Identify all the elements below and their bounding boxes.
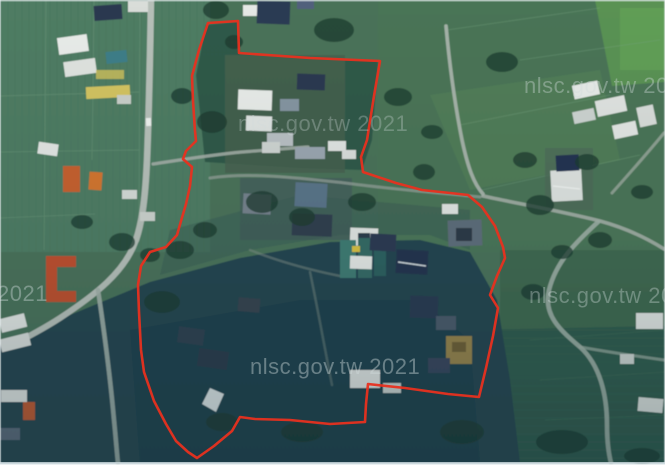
watermark-bottom-center: nlsc.gov.tw 2021 — [250, 354, 420, 379]
photo-tint — [0, 0, 665, 463]
watermark-mid-right: nlsc.gov.tw 20 — [529, 283, 665, 308]
watermark-top-right: nlsc.gov.tw 202 — [524, 73, 665, 98]
aerial-map-image: nlsc.gov.tw 2021 nlsc.gov.tw 202 2021 nl… — [0, 0, 665, 470]
watermark-mid-left: 2021 — [0, 281, 48, 306]
aerial-scenery — [0, 0, 665, 464]
aerial-photo-svg: nlsc.gov.tw 2021 nlsc.gov.tw 202 2021 nl… — [0, 0, 665, 470]
watermark-top-center: nlsc.gov.tw 2021 — [238, 111, 408, 136]
